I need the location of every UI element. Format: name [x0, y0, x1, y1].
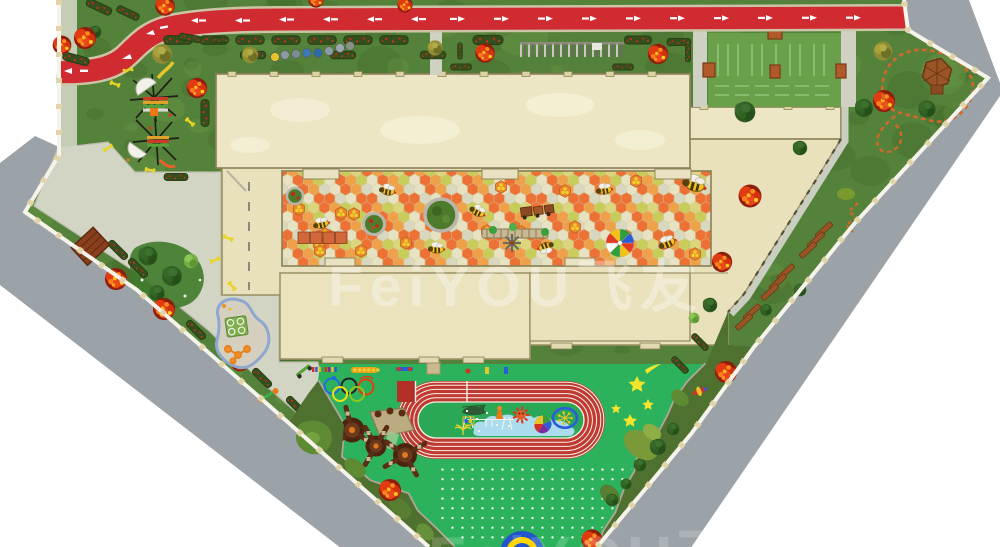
- svg-text:FeiYOU飞友: FeiYOU飞友: [328, 255, 704, 319]
- svg-text:FeiYOU飞友: FeiYOU飞友: [428, 525, 808, 547]
